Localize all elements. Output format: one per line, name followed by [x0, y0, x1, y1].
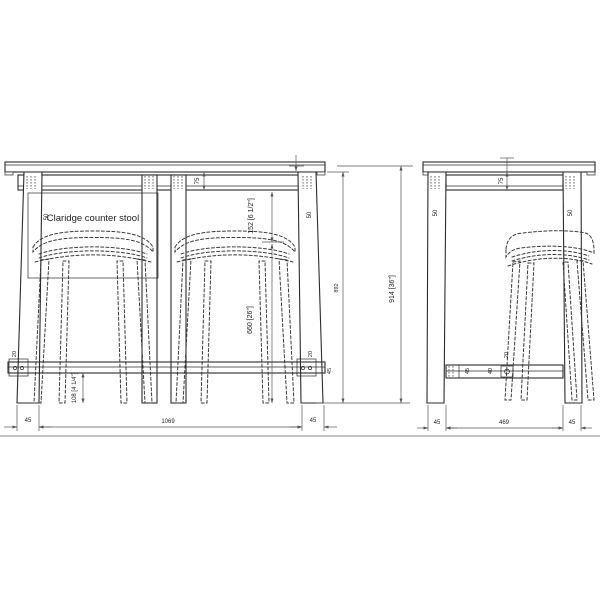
dim-underside-height: 892 [334, 283, 340, 292]
dim-apron-height-side: 75 [499, 177, 505, 184]
dim-rail-bracket-width: 45 [327, 368, 333, 374]
counter-apron [18, 175, 312, 190]
dim-foot-left: 45 [25, 418, 32, 424]
rail-bracket-right [297, 359, 316, 376]
side-elevation-view [423, 162, 595, 403]
dim-apron-height: 75 [195, 177, 201, 184]
dim-foot-right: 45 [310, 418, 317, 424]
label-box [28, 193, 158, 278]
dim-rail-bolt: 20 [504, 352, 510, 358]
dim-overall-width: 1069 [161, 419, 175, 425]
drawing-canvas: Claridge counter stool 50 50 75 152 [6 1… [0, 0, 600, 600]
stool-front-right [175, 231, 295, 403]
counter-top-side [423, 162, 595, 172]
dim-seat-height: 660 [26"] [247, 306, 254, 334]
dim-leg-front: 50 [433, 209, 439, 216]
dim-rail-to-floor: 108 [4 1/4"] [72, 372, 78, 403]
dim-counter-to-seat: 152 [6 1/2"] [248, 198, 255, 234]
dim-rail-right-thickness: 20 [308, 351, 314, 357]
dim-rail-inner: 40 [488, 368, 494, 374]
dim-depth-inner: 469 [499, 420, 510, 426]
dim-foot-front: 45 [434, 420, 441, 426]
front-elevation-view: Claridge counter stool [5, 162, 325, 403]
rail-bracket-left [9, 359, 28, 376]
product-label: Claridge counter stool [47, 213, 139, 224]
dim-overall-height: 914 [36"] [389, 275, 396, 303]
dim-leg-left: 50 [44, 213, 50, 220]
foot-rail [8, 362, 325, 373]
counter-top [5, 162, 325, 172]
dim-leg-rear: 50 [568, 209, 574, 216]
dim-foot-rear: 45 [569, 420, 576, 426]
dim-leg-right: 50 [307, 211, 313, 218]
dim-rail-width: 45 [465, 368, 471, 374]
dim-rail-left-thickness: 20 [12, 351, 18, 357]
technical-drawing-page: Claridge counter stool 50 50 75 152 [6 1… [0, 0, 600, 600]
counter-leg-front [427, 172, 446, 403]
